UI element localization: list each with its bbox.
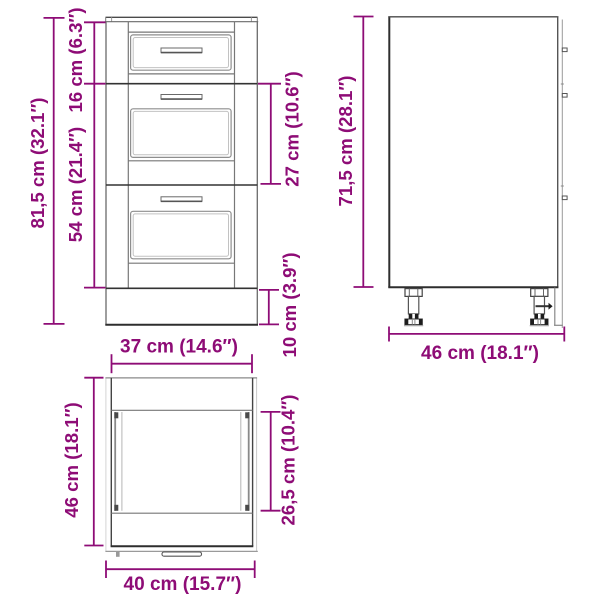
svg-text:10 cm (3.9″): 10 cm (3.9″) xyxy=(279,252,300,357)
svg-text:16 cm (6.3″): 16 cm (6.3″) xyxy=(65,7,86,112)
svg-text:46 cm (18.1″): 46 cm (18.1″) xyxy=(61,402,82,517)
svg-text:54 cm (21.4″): 54 cm (21.4″) xyxy=(65,127,86,242)
svg-text:46 cm (18.1″): 46 cm (18.1″) xyxy=(421,343,539,364)
svg-text:71,5 cm (28.1″): 71,5 cm (28.1″) xyxy=(335,76,356,207)
svg-text:37 cm (14.6″): 37 cm (14.6″) xyxy=(120,337,238,358)
svg-text:40 cm (15.7″): 40 cm (15.7″) xyxy=(124,574,242,595)
svg-text:27 cm (10.6″): 27 cm (10.6″) xyxy=(282,71,303,186)
svg-text:81,5 cm (32.1″): 81,5 cm (32.1″) xyxy=(27,98,48,229)
svg-text:26,5 cm (10.4″): 26,5 cm (10.4″) xyxy=(278,395,299,526)
